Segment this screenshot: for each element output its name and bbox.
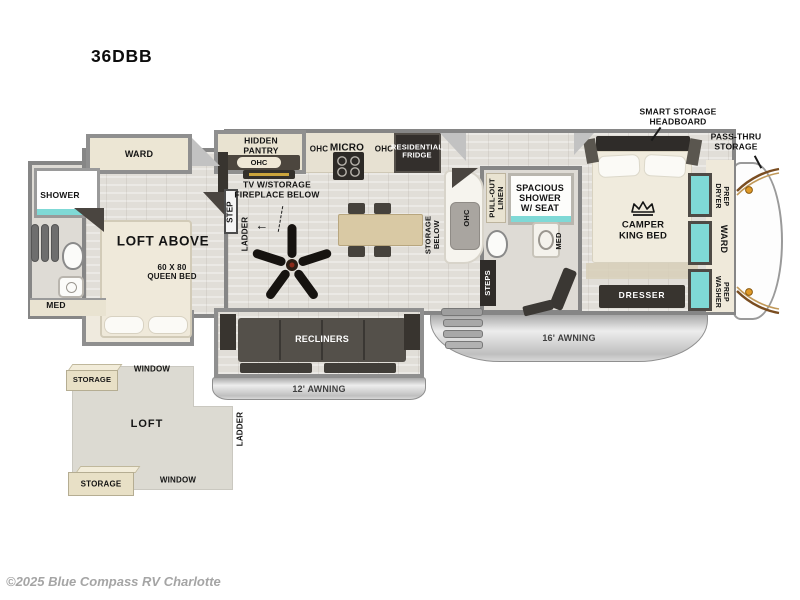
bedroom-rug — [586, 263, 698, 279]
ladder-label: LADDER — [242, 217, 251, 252]
loft-storage-bottom-label: STORAGE — [81, 481, 122, 490]
spacious-shower-label: SPACIOUS SHOWER W/ SEAT — [516, 183, 564, 213]
step-label: STEP — [227, 201, 236, 223]
recliners-label: RECLINERS — [295, 334, 349, 344]
copyright-watermark: ©2025 Blue Compass RV Charlotte — [6, 574, 221, 589]
side-table — [404, 314, 420, 350]
entry-step — [443, 319, 483, 327]
washer-prep-label: WASHER PREP — [713, 276, 729, 308]
king-pillow — [597, 154, 640, 178]
mid-toilet — [486, 230, 508, 258]
bedroom-ward-label: WARD — [719, 225, 729, 253]
rear-ladder-bar — [31, 224, 39, 262]
crown-icon — [628, 200, 658, 217]
counter-ohc-label: OHC — [463, 209, 471, 226]
loft-ladder-label: LADDER — [237, 412, 246, 447]
dryer-prep-label: DRYER PREP — [713, 183, 729, 208]
king-pillow — [643, 154, 686, 178]
loft-area-extension — [193, 406, 233, 490]
queen-bed-label: 60 X 80 QUEEN BED — [147, 264, 196, 282]
ward-slide-label: WARD — [125, 149, 153, 159]
rear-ladder-bar — [41, 224, 49, 262]
loft-label: LOFT — [131, 418, 164, 430]
dining-chair — [374, 203, 391, 214]
queen-pillow — [104, 316, 144, 334]
mid-sink-bowl — [538, 230, 554, 250]
floor-mat — [324, 363, 396, 373]
dining-chair — [348, 246, 365, 257]
recliner-divider — [279, 320, 281, 360]
dining-chair — [374, 246, 391, 257]
loft-storage-top-label: STORAGE — [73, 376, 111, 384]
pass-thru-callout: PASS-THRU STORAGE — [711, 132, 762, 151]
tv-arrow-icon: ← — [255, 219, 268, 234]
loft-window-top-label: WINDOW — [134, 366, 170, 375]
bedroom-window — [688, 221, 712, 265]
page-title: 36DBB — [91, 46, 152, 67]
rear-med-cabinet — [30, 298, 106, 316]
entry-step — [445, 341, 483, 349]
dresser-label: DRESSER — [619, 291, 666, 301]
stove-icon — [333, 152, 364, 180]
island-storage-label: STORAGE BELOW — [425, 216, 442, 254]
steps-label: STEPS — [484, 270, 492, 296]
front-cap-accents-icon — [735, 164, 781, 318]
micro-label: MICRO — [330, 142, 364, 153]
ceiling-fan-icon — [249, 222, 335, 308]
mid-med-label: MED — [555, 232, 563, 249]
tv-fireplace-unit — [243, 170, 295, 179]
bedroom-window — [688, 269, 712, 311]
side-table — [220, 314, 236, 350]
recliner-divider — [363, 320, 365, 360]
rear-ladder-bar — [51, 224, 59, 262]
rear-shower-label: SHOWER — [40, 191, 79, 201]
rear-med-label: MED — [46, 301, 66, 311]
entry-step — [443, 330, 483, 338]
bedroom-window — [688, 173, 712, 217]
awning-12ft-label: 12' AWNING — [292, 384, 345, 394]
rv-floorplan-page: 36DBB 12' AWNING 16' AWNING SHOWER MED W… — [0, 0, 800, 600]
ohc-left-label: OHC — [310, 146, 328, 155]
pantry-ohc-label: OHC — [251, 158, 268, 167]
loft-above-label: LOFT ABOVE — [117, 233, 210, 248]
loft-window-bottom-label: WINDOW — [160, 477, 196, 486]
front-cap — [733, 162, 783, 320]
rear-sink-bowl — [66, 282, 77, 293]
dining-table — [338, 214, 423, 246]
awning-16ft-label: 16' AWNING — [542, 333, 595, 343]
fridge-label: RESIDENTIAL FRIDGE — [391, 144, 443, 161]
fireplace-glow — [249, 173, 289, 176]
entry-step — [441, 308, 483, 316]
smart-storage-headboard — [596, 136, 690, 151]
dining-chair — [348, 203, 365, 214]
linen-label: PULL-OUT LINEN — [489, 178, 506, 218]
pantry-ohc-pill: OHC — [237, 157, 281, 168]
queen-pillow — [148, 316, 188, 334]
rear-toilet — [62, 242, 84, 270]
floor-mat — [240, 363, 312, 373]
rear-sink — [58, 276, 84, 298]
king-bed-label: CAMPER KING BED — [619, 220, 667, 241]
hidden-pantry-label: HIDDEN PANTRY — [243, 136, 278, 155]
tv-fireplace-label: TV W/STORAGE FIREPLACE BELOW — [234, 180, 319, 199]
headboard-callout: SMART STORAGE HEADBOARD — [639, 107, 716, 126]
